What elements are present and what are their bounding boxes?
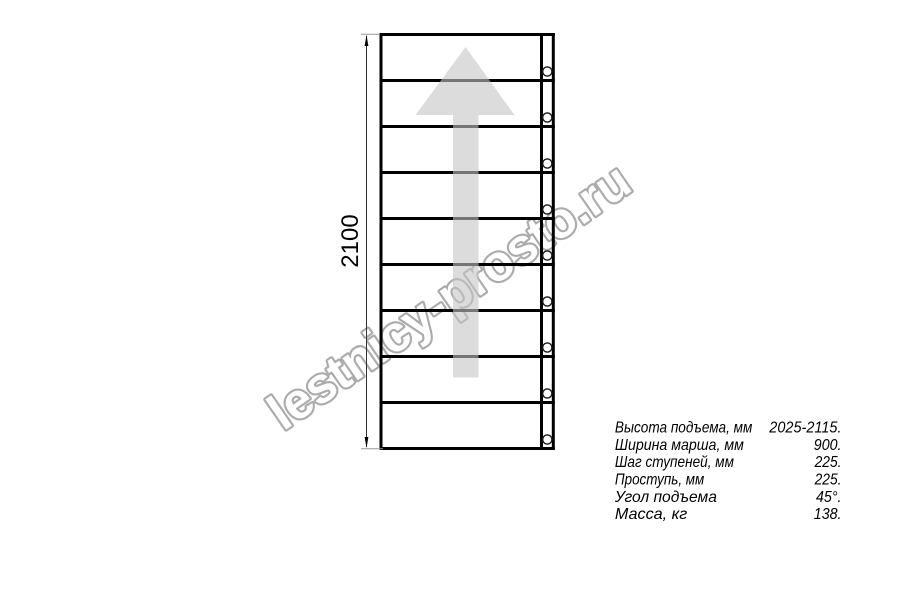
svg-text:Ширина марша, мм: Ширина марша, мм xyxy=(615,437,744,454)
svg-text:Проступь, мм: Проступь, мм xyxy=(615,472,704,489)
svg-text:45°.: 45°. xyxy=(816,489,842,506)
svg-text:900.: 900. xyxy=(814,437,842,454)
svg-text:Угол подъема: Угол подъема xyxy=(614,489,717,506)
svg-text:2025-2115.: 2025-2115. xyxy=(768,420,841,437)
svg-text:225.: 225. xyxy=(814,472,842,489)
svg-text:2100: 2100 xyxy=(337,214,364,267)
svg-text:Высота подъема, мм: Высота подъема, мм xyxy=(615,420,752,437)
svg-text:138.: 138. xyxy=(814,506,842,523)
svg-text:Масса, кг: Масса, кг xyxy=(615,506,687,523)
svg-text:225.: 225. xyxy=(814,454,842,471)
svg-text:Шаг ступеней, мм: Шаг ступеней, мм xyxy=(615,454,734,471)
